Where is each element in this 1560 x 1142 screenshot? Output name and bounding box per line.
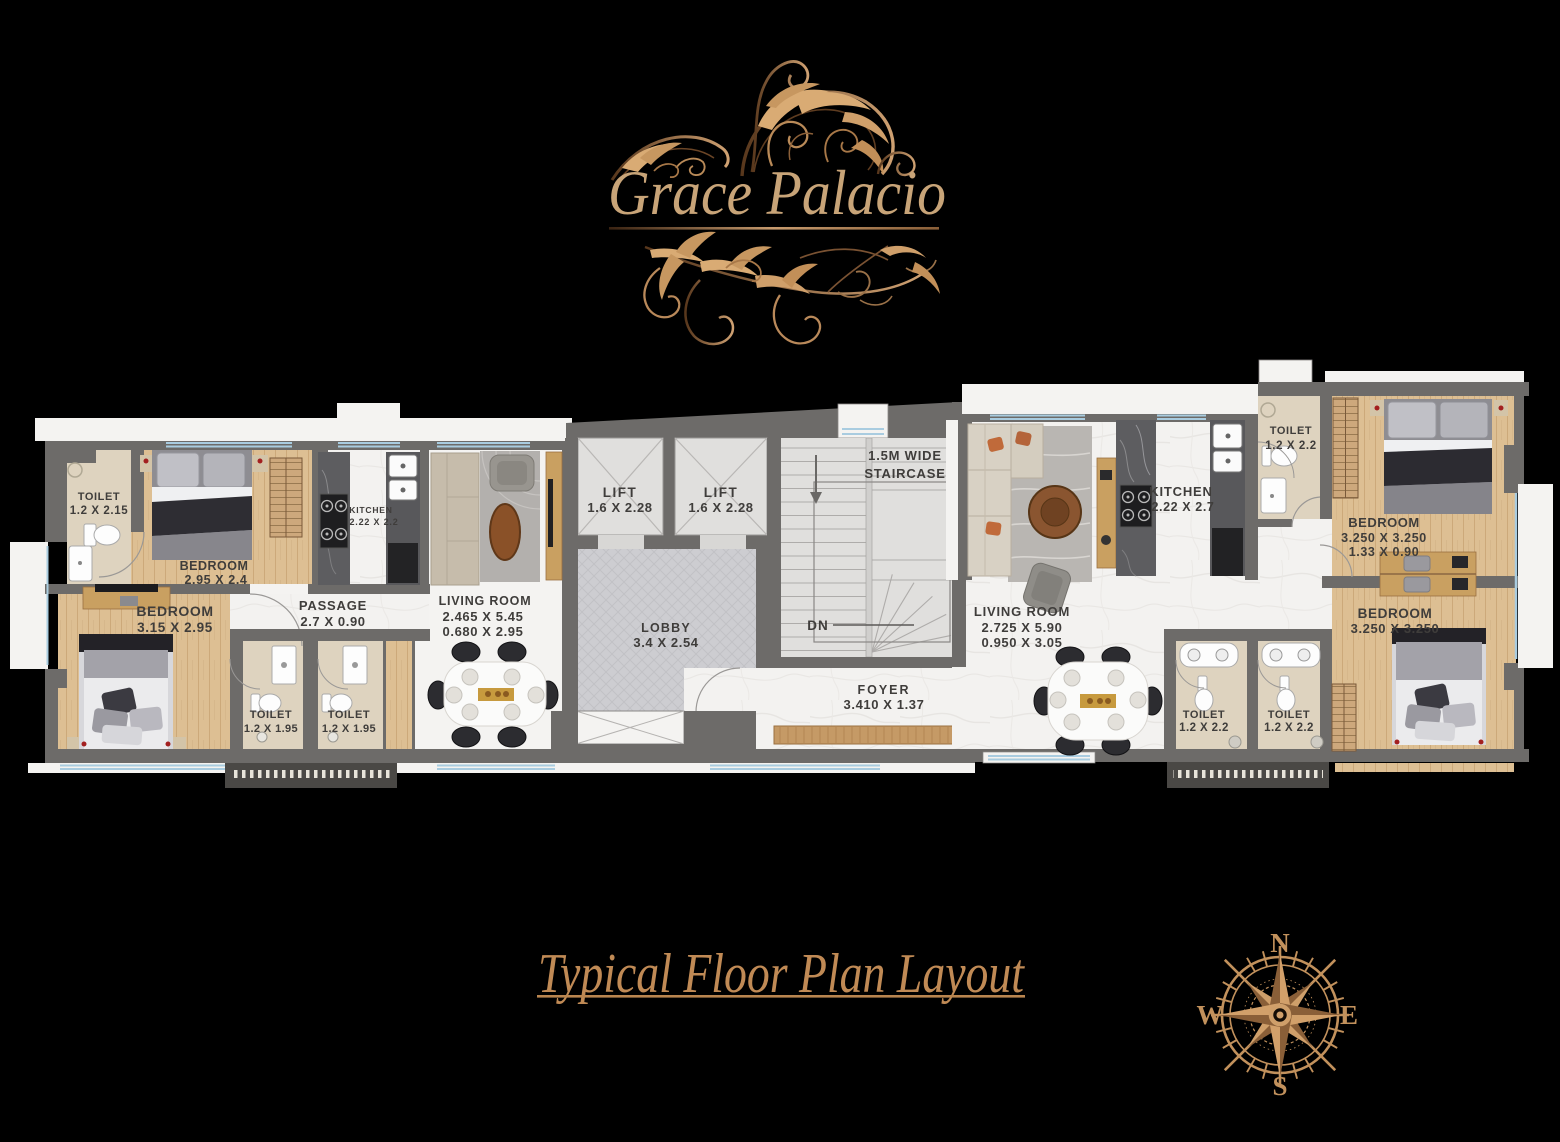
svg-text:TOILET: TOILET	[250, 709, 293, 721]
svg-text:3.250 X 3.250: 3.250 X 3.250	[1351, 621, 1440, 636]
svg-text:1.5M WIDE: 1.5M WIDE	[868, 448, 942, 463]
svg-text:E: E	[1340, 1000, 1358, 1030]
svg-text:TOILET: TOILET	[1183, 709, 1226, 721]
svg-text:TOILET: TOILET	[1270, 425, 1313, 437]
svg-text:2.7 X 0.90: 2.7 X 0.90	[300, 614, 365, 629]
svg-text:FOYER: FOYER	[857, 683, 910, 697]
svg-text:TOILET: TOILET	[1268, 709, 1311, 721]
svg-text:2.465 X 5.45: 2.465 X 5.45	[443, 609, 524, 624]
svg-text:1.2 X 2.2: 1.2 X 2.2	[1179, 722, 1229, 734]
svg-text:1.2 X 1.95: 1.2 X 1.95	[244, 723, 298, 735]
svg-text:3.410 X 1.37: 3.410 X 1.37	[844, 697, 925, 712]
svg-text:2.95 X 2.4: 2.95 X 2.4	[185, 573, 248, 587]
svg-text:1.2 X 2.15: 1.2 X 2.15	[70, 505, 128, 517]
svg-text:1.6 X 2.28: 1.6 X 2.28	[688, 500, 753, 515]
svg-text:BEDROOM: BEDROOM	[136, 603, 213, 619]
svg-text:PASSAGE: PASSAGE	[299, 598, 367, 613]
svg-text:N: N	[1270, 928, 1290, 958]
svg-text:BEDROOM: BEDROOM	[1348, 515, 1419, 530]
svg-text:BEDROOM: BEDROOM	[1358, 606, 1433, 621]
svg-text:1.2 X 2.2: 1.2 X 2.2	[1264, 722, 1314, 734]
svg-text:3.15 X 2.95: 3.15 X 2.95	[137, 620, 213, 635]
svg-text:W: W	[1197, 1000, 1224, 1030]
svg-text:0.950 X 3.05: 0.950 X 3.05	[982, 635, 1063, 650]
svg-text:BEDROOM: BEDROOM	[180, 559, 249, 573]
svg-text:LIFT: LIFT	[603, 485, 638, 500]
svg-text:KITCHEN: KITCHEN	[1149, 484, 1212, 499]
svg-text:TOILET: TOILET	[328, 709, 371, 721]
svg-text:2.725 X 5.90: 2.725 X 5.90	[982, 620, 1063, 635]
svg-text:0.680 X 2.95: 0.680 X 2.95	[443, 624, 524, 639]
svg-text:1.6 X 2.28: 1.6 X 2.28	[587, 500, 652, 515]
svg-text:1.33 X 0.90: 1.33 X 0.90	[1349, 545, 1420, 559]
svg-text:TOILET: TOILET	[78, 491, 121, 503]
svg-text:DN: DN	[807, 618, 829, 633]
svg-text:S: S	[1272, 1071, 1287, 1101]
svg-text:3.4 X 2.54: 3.4 X 2.54	[633, 635, 698, 650]
svg-text:2.22 X 2.2: 2.22 X 2.2	[349, 517, 398, 527]
svg-text:1.2 X 1.95: 1.2 X 1.95	[322, 723, 376, 735]
svg-text:LIVING ROOM: LIVING ROOM	[439, 594, 532, 608]
svg-text:Grace Palacio: Grace Palacio	[608, 157, 946, 228]
svg-text:KITCHEN: KITCHEN	[349, 505, 392, 515]
svg-text:LIVING ROOM: LIVING ROOM	[974, 604, 1070, 619]
svg-text:LOBBY: LOBBY	[641, 621, 691, 635]
svg-text:1.2 X 2.2: 1.2 X 2.2	[1265, 440, 1316, 452]
svg-text:STAIRCASE: STAIRCASE	[864, 466, 945, 481]
svg-text:2.22 X 2.7: 2.22 X 2.7	[1152, 500, 1215, 514]
svg-text:LIFT: LIFT	[704, 485, 739, 500]
svg-text:3.250 X 3.250: 3.250 X 3.250	[1341, 531, 1427, 545]
